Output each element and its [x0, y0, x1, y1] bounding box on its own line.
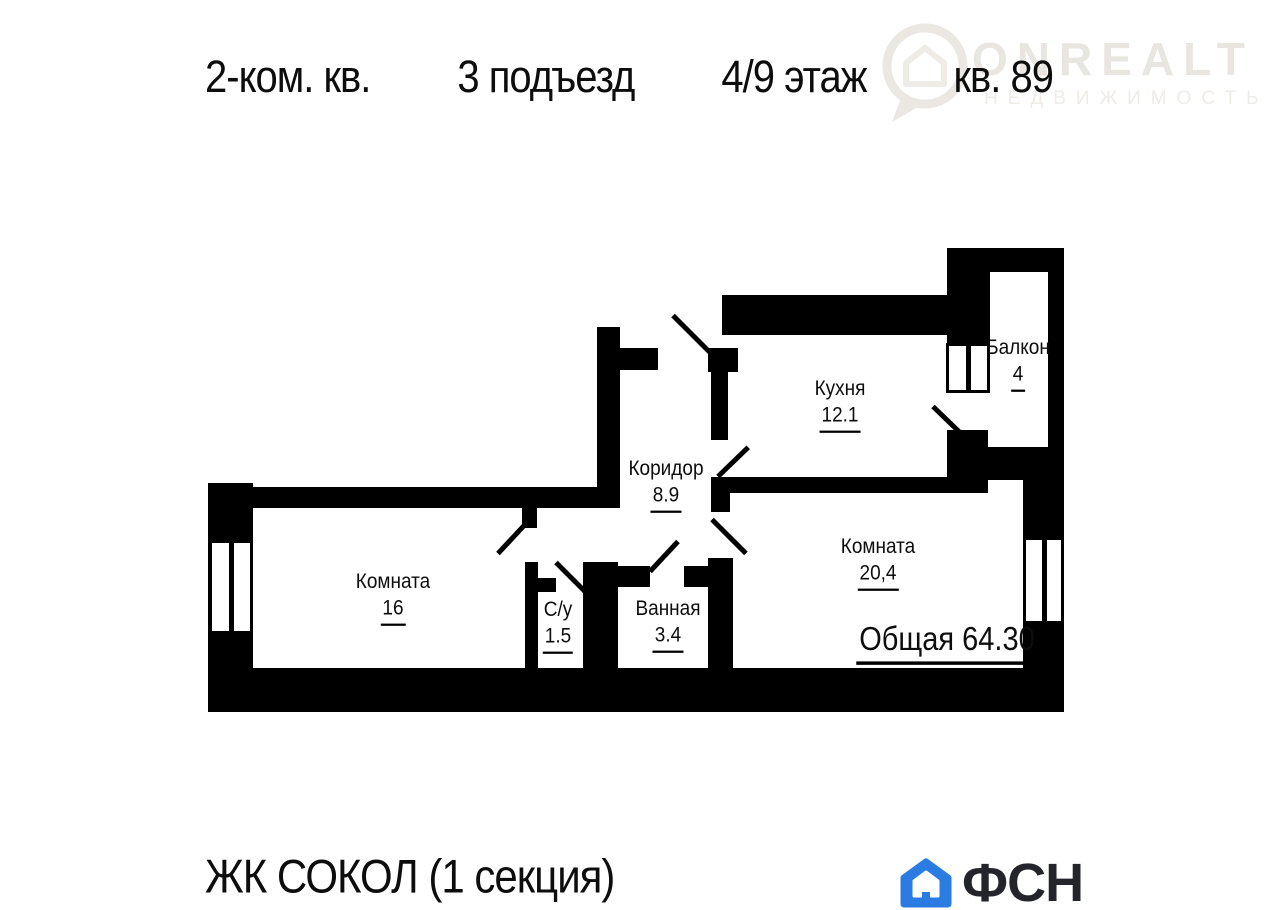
room-label-kitchen: Кухня 12.1 — [815, 376, 866, 433]
fsn-logo-text: ФСН — [962, 856, 1083, 910]
wall — [1048, 272, 1064, 447]
room-name: Комната — [356, 569, 430, 596]
wall — [684, 566, 711, 587]
room-label-wc: С/у 1.5 — [543, 597, 573, 654]
window — [946, 343, 990, 393]
room-name: Комната — [841, 534, 915, 561]
room-area: 4 — [1011, 361, 1026, 391]
wall — [722, 295, 947, 335]
wall — [597, 327, 620, 508]
total-area-label: Общая 64.30 — [856, 621, 1038, 665]
project-name: ЖК СОКОЛ (1 секция) — [205, 850, 614, 904]
room-label-bathroom: Ванная 3.4 — [635, 596, 700, 653]
room-area: 12.1 — [820, 402, 861, 432]
room-area: 8.9 — [651, 482, 681, 512]
room-name: Коридор — [628, 456, 703, 483]
wall — [525, 562, 538, 668]
window-mullion — [229, 540, 234, 634]
door-swing-line — [671, 314, 711, 354]
room-area: 16 — [380, 595, 405, 625]
room-name: Кухня — [815, 376, 866, 403]
room-label-balcony: Балкон 4 — [986, 335, 1050, 392]
wall — [538, 578, 556, 592]
window — [1023, 537, 1064, 624]
room-name: С/у — [543, 597, 573, 624]
wall — [522, 506, 537, 528]
room-label-corridor: Коридор 8.9 — [628, 456, 703, 513]
wall — [618, 566, 650, 587]
wall — [711, 477, 988, 493]
wall — [947, 248, 1064, 272]
wall — [711, 493, 730, 512]
room-area: 1.5 — [543, 623, 573, 653]
wall — [210, 487, 620, 508]
wall — [620, 348, 658, 370]
room-area: 20,4 — [858, 560, 899, 590]
fsn-house-icon — [900, 858, 952, 908]
door-swing-line — [496, 524, 526, 555]
room-area: 3.4 — [653, 622, 683, 652]
wall — [708, 558, 733, 668]
title-entrance: 3 подъезд — [457, 52, 634, 103]
window — [209, 540, 253, 634]
room-label-room16: Комната 16 — [356, 569, 430, 626]
title-apartment-type: 2-ком. кв. — [205, 52, 370, 103]
room-label-room20: Комната 20,4 — [841, 534, 915, 591]
door-swing-line — [710, 518, 747, 555]
floorplan-page: ONREALT НЕДВИЖИМОСТЬ 2-ком. кв. 3 подъез… — [0, 0, 1279, 910]
window-mullion — [1042, 537, 1047, 624]
wall — [947, 430, 988, 480]
door-swing-line — [554, 561, 587, 594]
door-swing-line — [716, 446, 750, 479]
wall — [583, 562, 618, 668]
window-mullion — [966, 343, 971, 393]
wall — [208, 668, 1064, 712]
door-swing-line — [648, 540, 680, 573]
title-floor: 4/9 этаж — [721, 52, 866, 103]
title-apartment-number: кв. 89 — [954, 52, 1053, 103]
plan-title: 2-ком. кв. 3 подъезд 4/9 этаж кв. 89 — [205, 52, 1053, 103]
fsn-logo: ФСН — [900, 856, 1083, 910]
wall — [711, 348, 728, 440]
room-name: Балкон — [986, 335, 1050, 362]
room-name: Ванная — [635, 596, 700, 623]
